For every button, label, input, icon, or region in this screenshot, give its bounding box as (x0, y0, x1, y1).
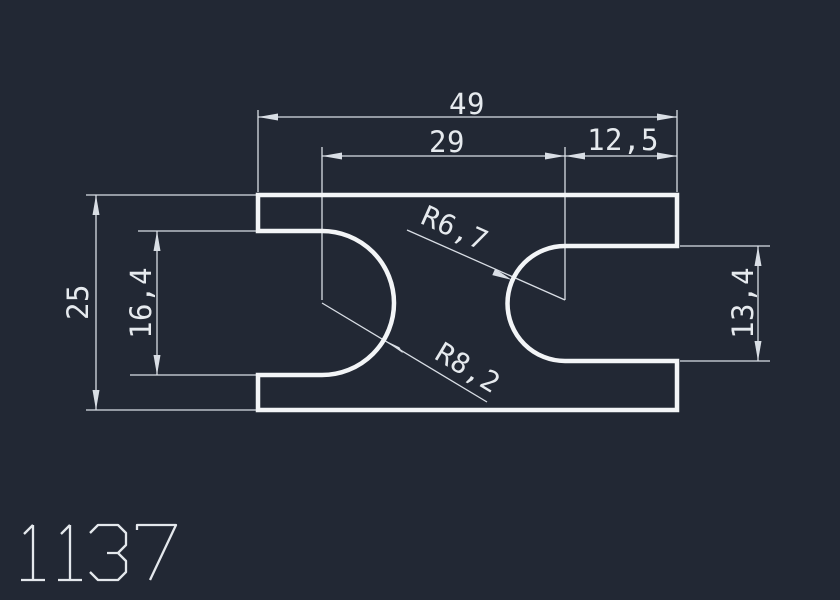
cad-canvas[interactable]: 49 29 12,5 25 16,4 13,4 R6,7 R8,2 (0, 0, 840, 600)
dim-right-offset-label: 12,5 (587, 123, 659, 157)
dim-total-height-label: 25 (61, 284, 95, 320)
dim-total-width-label: 49 (449, 87, 485, 121)
dim-center-distance-label: 29 (429, 125, 465, 159)
dim-left-slot-height-label: 16,4 (124, 267, 158, 339)
dim-right-slot-height-label: 13,4 (726, 267, 760, 339)
